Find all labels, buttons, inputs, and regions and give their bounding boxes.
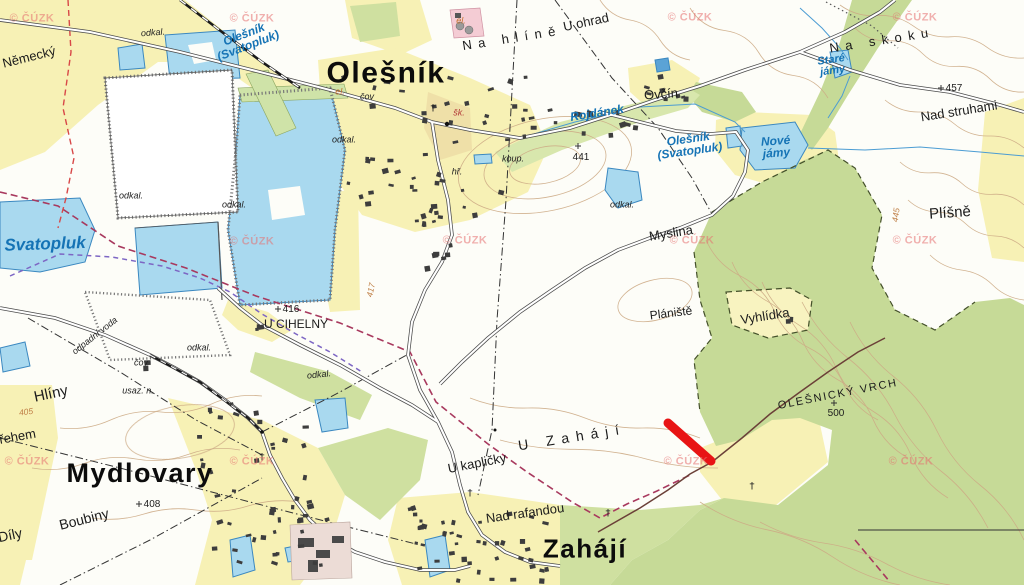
highlighted-segment[interactable] xyxy=(668,423,711,461)
svg-text:†: † xyxy=(468,488,473,499)
svg-text:†: † xyxy=(260,452,265,463)
map-viewport[interactable]: ††† †† OlešníkMydlovaryZahájíNěmeckýHlín… xyxy=(0,0,1024,585)
svg-text:†: † xyxy=(750,481,755,492)
svg-text:†: † xyxy=(431,103,436,114)
industrial-site xyxy=(290,522,352,580)
map-canvas[interactable]: ††† †† xyxy=(0,0,1024,585)
substation xyxy=(450,8,484,38)
svg-text:†: † xyxy=(606,508,611,519)
